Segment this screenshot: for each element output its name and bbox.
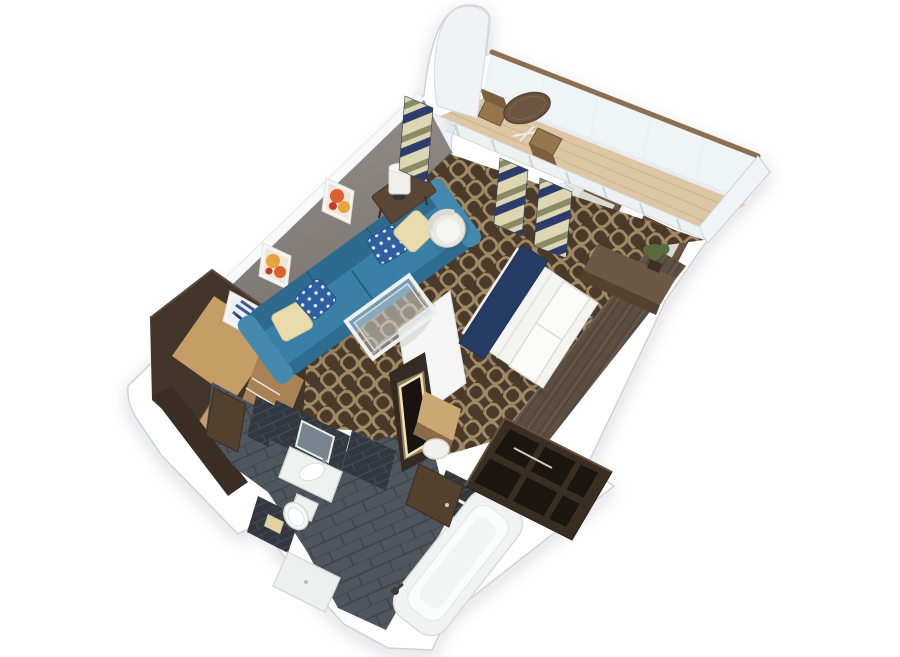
curtain-living-left [399, 96, 433, 182]
curtain-bedroom [534, 178, 572, 258]
curtain-living-right [494, 158, 528, 236]
art-blob-orange [330, 189, 344, 203]
suite-3d-rendering [0, 0, 900, 657]
art-blob-orange [274, 266, 286, 278]
vanity-stool [423, 439, 449, 459]
shower-drain [304, 580, 308, 584]
art-blob-red [329, 202, 337, 210]
art-blob-yellow [266, 254, 280, 268]
bathroom-door-handle [445, 503, 449, 507]
art-blob-yellow [338, 201, 350, 213]
floorplan-render [0, 0, 900, 657]
sink-faucet [322, 459, 326, 463]
lamp-base [393, 194, 406, 201]
plant-foliage [659, 244, 670, 255]
plant-foliage [643, 245, 653, 255]
art-blob-red [266, 268, 273, 275]
